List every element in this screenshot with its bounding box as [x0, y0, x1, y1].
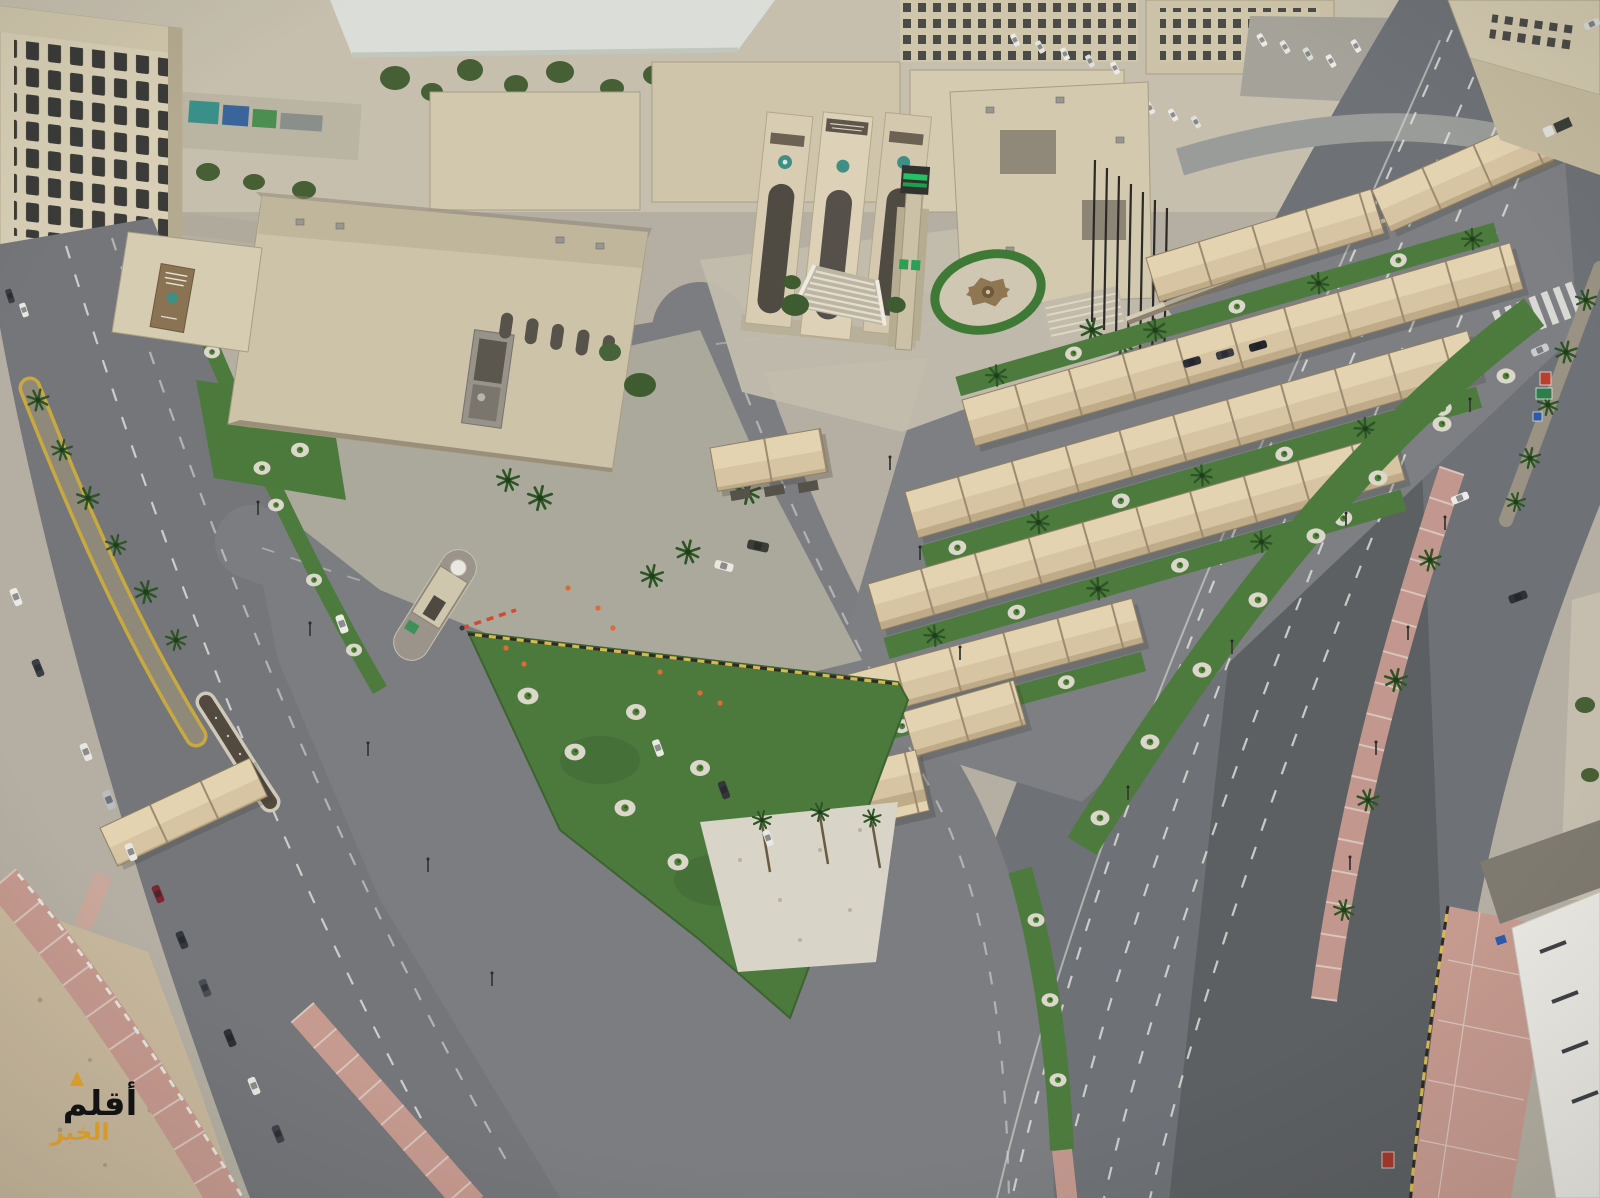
- aerial-photo: أقلم الخبر: [0, 0, 1600, 1198]
- vignette: [0, 0, 1600, 1198]
- aerial-photo-canvas: أقلم الخبر: [0, 0, 1600, 1198]
